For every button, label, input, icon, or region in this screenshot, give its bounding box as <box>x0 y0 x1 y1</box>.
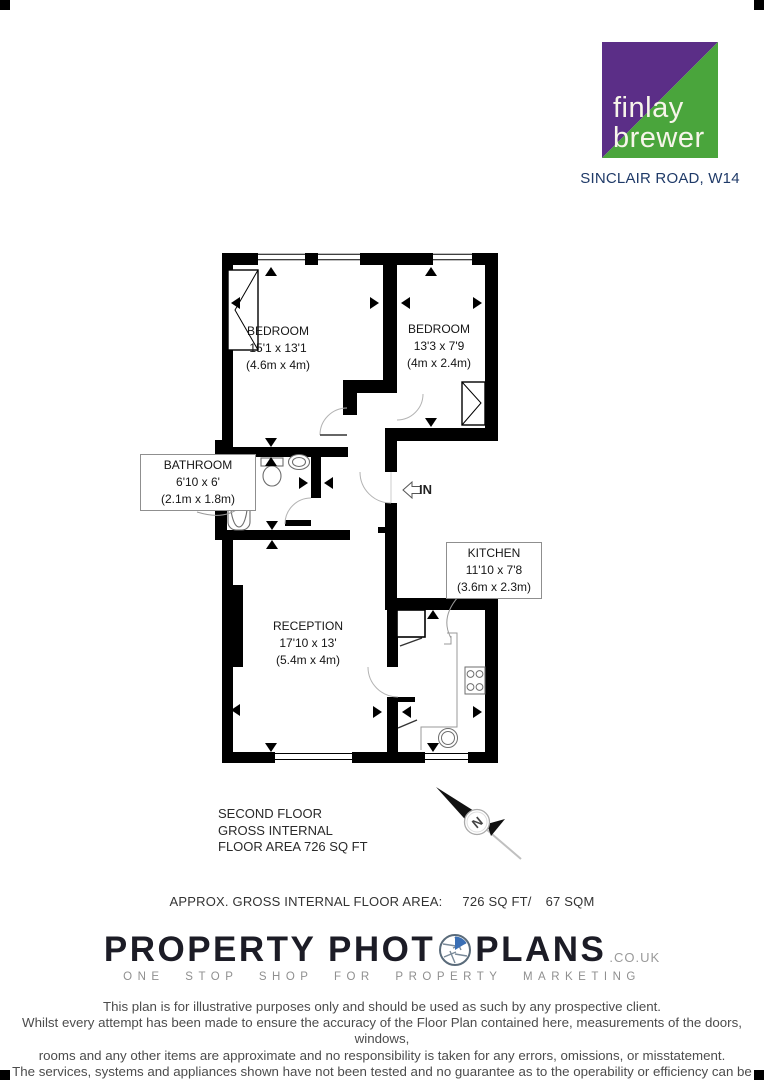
brand-text-right: PLANS <box>475 930 606 970</box>
gross-area-line: APPROX. GROSS INTERNAL FLOOR AREA:726 SQ… <box>0 894 764 909</box>
entrance-label: IN <box>419 482 432 497</box>
disclaimer-line: This plan is for illustrative purposes o… <box>0 999 764 1015</box>
kitchen-fixtures <box>397 610 485 750</box>
room-label-reception: RECEPTION 17'10 x 13' (5.4m x 4m) <box>250 618 366 669</box>
room-size-imperial: 6'10 x 6' <box>145 474 251 491</box>
room-label-bathroom: BATHROOM 6'10 x 6' (2.1m x 1.8m) <box>140 454 256 511</box>
floorplan-page: finlay brewer SINCLAIR ROAD, W14 <box>0 0 764 1080</box>
crop-mark <box>0 0 10 10</box>
room-size-imperial: 11'10 x 7'8 <box>451 562 537 579</box>
disclaimer-line: rooms and any other items are approximat… <box>0 1048 764 1064</box>
aperture-icon <box>437 932 473 968</box>
gross-area-metric: 67 SQM <box>546 894 595 909</box>
disclaimer: This plan is for illustrative purposes o… <box>0 999 764 1080</box>
footer-brand: PROPERTY PHOT PLANS .CO.UK <box>0 930 764 970</box>
hob-icon <box>465 667 485 694</box>
agency-logo: finlay brewer <box>602 42 718 158</box>
agency-name-line2: brewer <box>613 124 705 153</box>
disclaimer-line: The services, systems and appliances sho… <box>0 1064 764 1080</box>
room-size-imperial: 13'3 x 7'9 <box>381 338 497 355</box>
room-size-metric: (5.4m x 4m) <box>250 652 366 669</box>
toilet-icon <box>263 466 281 486</box>
room-size-metric: (4m x 2.4m) <box>381 355 497 372</box>
disclaimer-line: Whilst every attempt has been made to en… <box>0 1015 764 1047</box>
floor-summary: SECOND FLOOR GROSS INTERNAL FLOOR AREA 7… <box>218 806 368 856</box>
crop-mark <box>754 0 764 10</box>
room-label-bedroom2: BEDROOM 13'3 x 7'9 (4m x 2.4m) <box>381 321 497 372</box>
room-name: RECEPTION <box>250 618 366 635</box>
room-size-metric: (3.6m x 2.3m) <box>451 579 537 596</box>
floor-area-value: FLOOR AREA 726 SQ FT <box>218 839 368 856</box>
room-size-metric: (4.6m x 4m) <box>220 357 336 374</box>
cupboard-icon <box>397 610 425 637</box>
brand-text-left: PROPERTY PHOT <box>104 930 435 970</box>
brand-suffix: .CO.UK <box>609 950 660 965</box>
floor-name: SECOND FLOOR <box>218 806 368 823</box>
basin-inner <box>293 458 306 467</box>
room-size-imperial: 17'10 x 13' <box>250 635 366 652</box>
room-label-kitchen: KITCHEN 11'10 x 7'8 (3.6m x 2.3m) <box>446 542 542 599</box>
room-name: BEDROOM <box>381 321 497 338</box>
sink-icon <box>439 729 458 748</box>
floor-area-label: GROSS INTERNAL <box>218 823 368 840</box>
room-label-bedroom1: BEDROOM 15'1 x 13'1 (4.6m x 4m) <box>220 323 336 374</box>
door-leaves <box>320 435 422 728</box>
brand-tagline: ONE STOP SHOP FOR PROPERTY MARKETING <box>0 971 764 983</box>
room-name: KITCHEN <box>451 545 537 562</box>
room-size-imperial: 15'1 x 13'1 <box>220 340 336 357</box>
room-name: BEDROOM <box>220 323 336 340</box>
property-address: SINCLAIR ROAD, W14 <box>560 170 760 187</box>
room-size-metric: (2.1m x 1.8m) <box>145 491 251 508</box>
gross-area-label: APPROX. GROSS INTERNAL FLOOR AREA: <box>170 894 443 909</box>
gross-area-imperial: 726 SQ FT/ <box>462 894 531 909</box>
room-name: BATHROOM <box>145 457 251 474</box>
compass-icon: N <box>433 783 528 873</box>
agency-name-line1: finlay <box>613 94 684 123</box>
